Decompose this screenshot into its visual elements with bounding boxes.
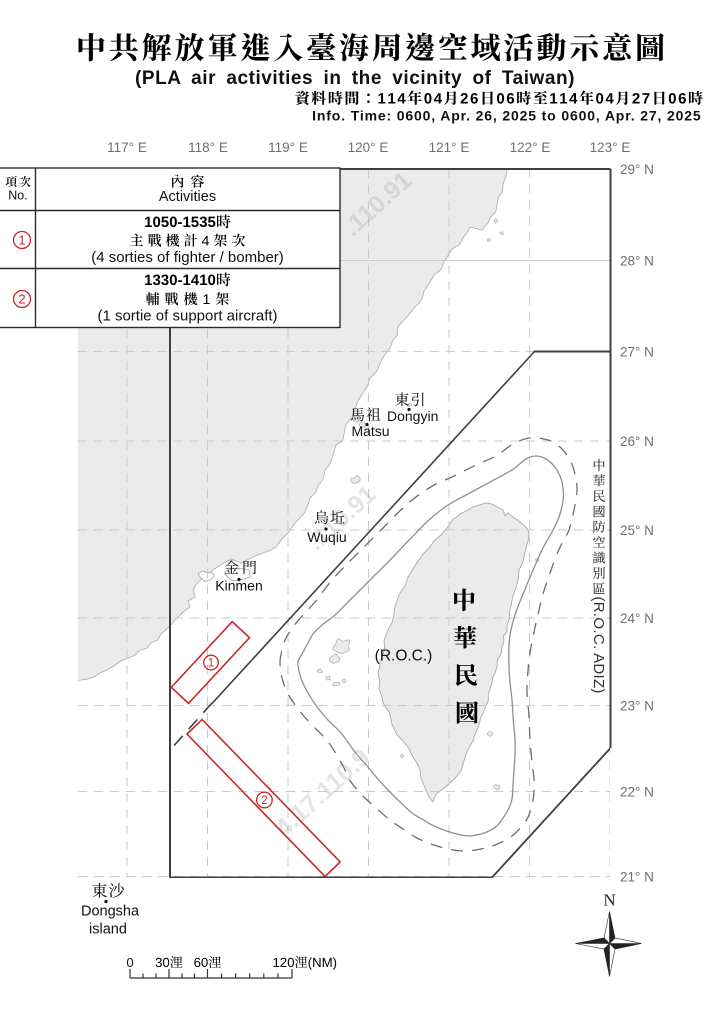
svg-text:27° N: 27° N — [620, 344, 654, 359]
svg-text:Info. Time: 0600, Apr. 26, 202: Info. Time: 0600, Apr. 26, 2025 to 0600,… — [312, 108, 701, 124]
svg-text:29° N: 29° N — [620, 162, 654, 177]
svg-text:122° E: 122° E — [510, 140, 551, 155]
svg-text:1: 1 — [208, 658, 214, 670]
svg-text:No.: No. — [8, 189, 27, 203]
svg-text:Matsu: Matsu — [351, 423, 389, 439]
svg-text:121° E: 121° E — [429, 140, 470, 155]
svg-text:Activities: Activities — [159, 189, 216, 205]
svg-text:Dongsha: Dongsha — [81, 904, 140, 920]
svg-text:(1 sortie of support aircraft): (1 sortie of support aircraft) — [97, 308, 277, 325]
svg-text:123° E: 123° E — [590, 140, 631, 155]
svg-text:119° E: 119° E — [268, 140, 308, 155]
svg-text:Wuqiu: Wuqiu — [307, 529, 346, 545]
svg-text:22° N: 22° N — [620, 784, 654, 799]
svg-text:(R.O.C. ADIZ): (R.O.C. ADIZ) — [590, 597, 607, 694]
svg-text:24° N: 24° N — [620, 611, 654, 626]
svg-text:(R.O.C.): (R.O.C.) — [375, 648, 433, 665]
svg-text:23° N: 23° N — [620, 698, 654, 713]
svg-text:N: N — [603, 891, 615, 910]
svg-text:(PLA air activities in the vic: (PLA air activities in the vicinity of T… — [135, 68, 575, 89]
svg-text:2: 2 — [18, 292, 25, 307]
svg-text:117° E: 117° E — [107, 140, 147, 155]
svg-text:25° N: 25° N — [620, 523, 654, 538]
svg-text:120° E: 120° E — [348, 140, 389, 155]
svg-text:28° N: 28° N — [620, 253, 654, 268]
svg-text:21° N: 21° N — [620, 869, 654, 884]
svg-text:island: island — [89, 922, 127, 938]
svg-text:(4 sorties of fighter / bomber: (4 sorties of fighter / bomber) — [91, 249, 284, 266]
svg-text:1: 1 — [18, 233, 25, 248]
svg-text:0: 0 — [126, 955, 133, 970]
svg-text:Dongyin: Dongyin — [387, 408, 438, 424]
svg-text:118° E: 118° E — [188, 140, 228, 155]
svg-text:Kinmen: Kinmen — [215, 578, 262, 594]
svg-text:2: 2 — [261, 795, 267, 807]
svg-text:26° N: 26° N — [620, 434, 654, 449]
